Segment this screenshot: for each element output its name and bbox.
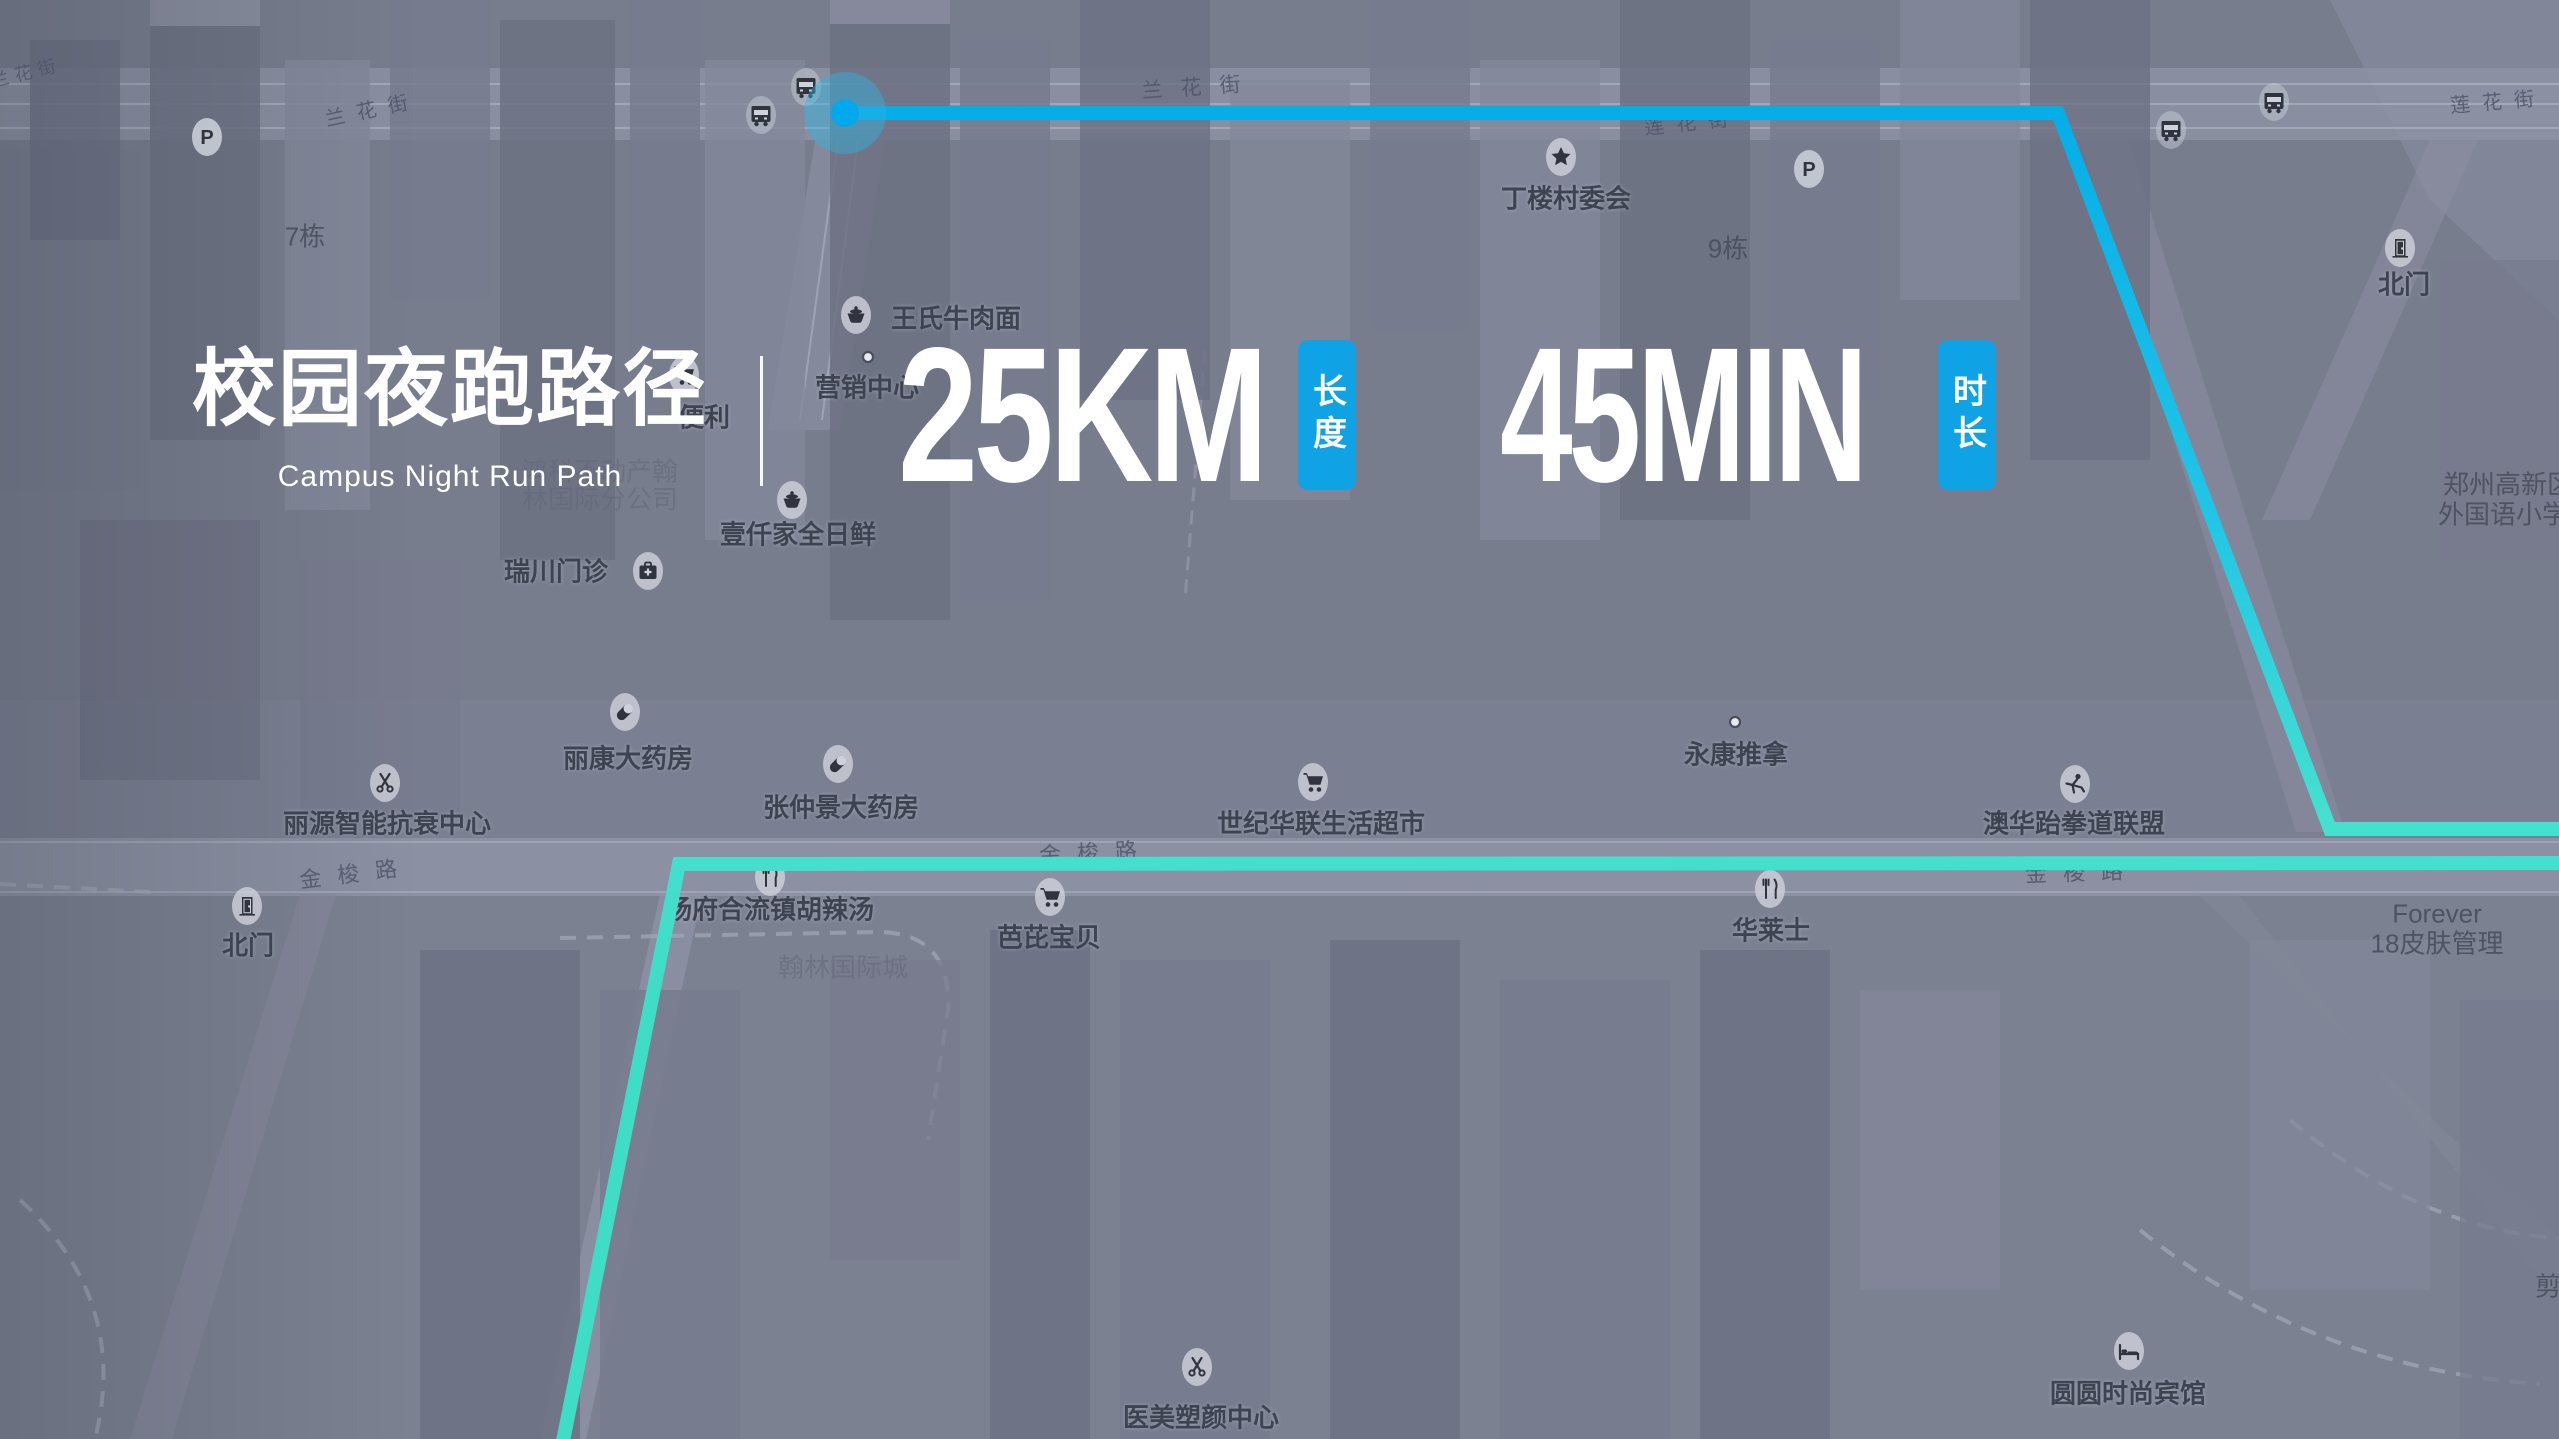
stat-duration-value-box: 45MIN <box>1500 340 1862 490</box>
stat-distance-badge: 长度 <box>1298 340 1356 490</box>
title-divider <box>760 356 763 486</box>
page-title: 校园夜跑路径 <box>192 346 708 432</box>
stat-duration: 45MIN 时长 <box>1500 340 1996 490</box>
route-start-marker <box>831 99 859 127</box>
route-layer <box>0 0 2559 1439</box>
stat-duration-badge: 时长 <box>1938 340 1996 490</box>
stat-distance: 25KM 长度 <box>898 340 1356 490</box>
stat-duration-value: 45MIN <box>1500 340 1746 490</box>
route-line <box>563 863 2559 1439</box>
stat-distance-value-box: 25KM <box>898 340 1256 490</box>
stat-distance-value: 25KM <box>898 340 1167 490</box>
page-subtitle: Campus Night Run Path <box>278 460 623 494</box>
map-canvas: P <box>0 0 2559 1439</box>
